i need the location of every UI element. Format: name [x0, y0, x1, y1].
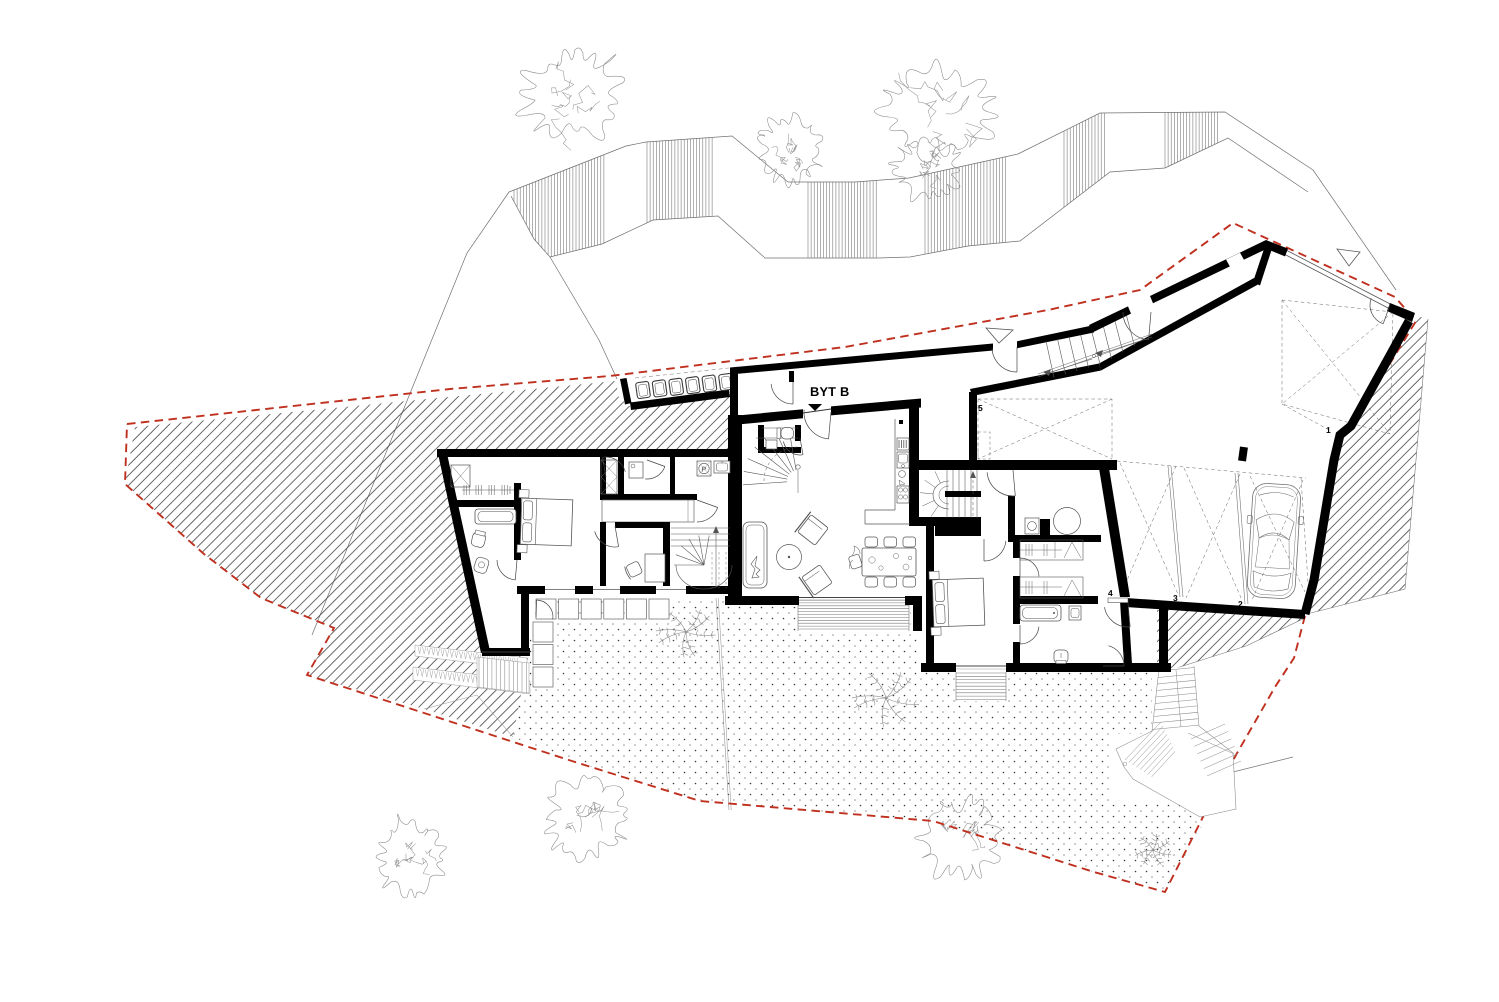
svg-text:3: 3 [1173, 593, 1178, 603]
svg-text:1: 1 [1326, 425, 1331, 435]
svg-text:2: 2 [1238, 599, 1243, 609]
svg-text:4: 4 [1108, 588, 1113, 598]
svg-text:5: 5 [978, 403, 983, 413]
svg-text:BYT B: BYT B [810, 384, 849, 399]
